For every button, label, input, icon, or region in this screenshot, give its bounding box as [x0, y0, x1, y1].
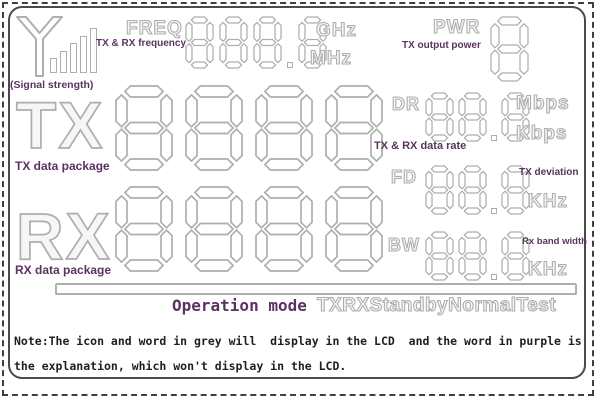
dr-digits: [425, 92, 530, 142]
decimal-point: [491, 208, 497, 214]
signal-bar: [90, 28, 97, 73]
pwr-lcd-label: PWR: [433, 18, 480, 37]
signal-bars: [50, 27, 97, 73]
rx-digits: [115, 186, 383, 272]
rx-lcd-label: RX: [16, 203, 112, 269]
operation-modes-lcd-text: TXRXStandbyNormalTest: [317, 296, 556, 315]
signal-bar: [80, 36, 87, 74]
dr-explanation-label: TX & RX data rate: [374, 141, 466, 152]
bw-digits: [425, 231, 530, 281]
freq-digits: [185, 16, 327, 69]
bw-khz-unit-label: KHz: [528, 260, 568, 279]
signal-bar: [60, 51, 67, 74]
lcd-spec-diagram: TX & RX frequency (Signal strength) FREQ…: [0, 0, 600, 402]
bw-explanation-label: Rx band width: [522, 237, 587, 247]
mbps-unit-label: Mbps: [516, 94, 570, 113]
signal-bar: [50, 58, 57, 73]
freq-explanation-label: TX & RX frequency: [96, 39, 186, 49]
decimal-point: [491, 135, 497, 141]
fd-khz-unit-label: KHz: [528, 192, 568, 211]
lcd-progress-bar: [55, 283, 577, 295]
fd-lcd-label: FD: [391, 168, 417, 186]
pwr-digit: [490, 16, 529, 82]
operation-mode-label: Operation mode: [172, 296, 307, 315]
note-line-2: the explanation, which won't display in …: [14, 359, 346, 373]
rx-explanation-label: RX data package: [15, 264, 111, 276]
bw-lcd-label: BW: [388, 236, 420, 254]
mhz-unit-label: MHz: [310, 49, 352, 68]
tx-lcd-label: TX: [16, 92, 104, 158]
decimal-point: [491, 274, 497, 280]
fd-explanation-label: TX deviation: [519, 168, 578, 178]
fd-digits: [425, 165, 530, 215]
ghz-unit-label: GHz: [316, 21, 357, 40]
tx-digits: [115, 85, 383, 171]
freq-lcd-label: FREQ: [126, 19, 183, 38]
note-line-1: Note:The icon and word in grey will disp…: [14, 334, 582, 348]
kbps-unit-label: Kbps: [516, 124, 568, 143]
pwr-explanation-label: TX output power: [402, 41, 481, 51]
dr-lcd-label: DR: [392, 95, 420, 113]
decimal-point: [287, 62, 293, 68]
tx-explanation-label: TX data package: [15, 160, 110, 172]
signal-bar: [70, 43, 77, 73]
